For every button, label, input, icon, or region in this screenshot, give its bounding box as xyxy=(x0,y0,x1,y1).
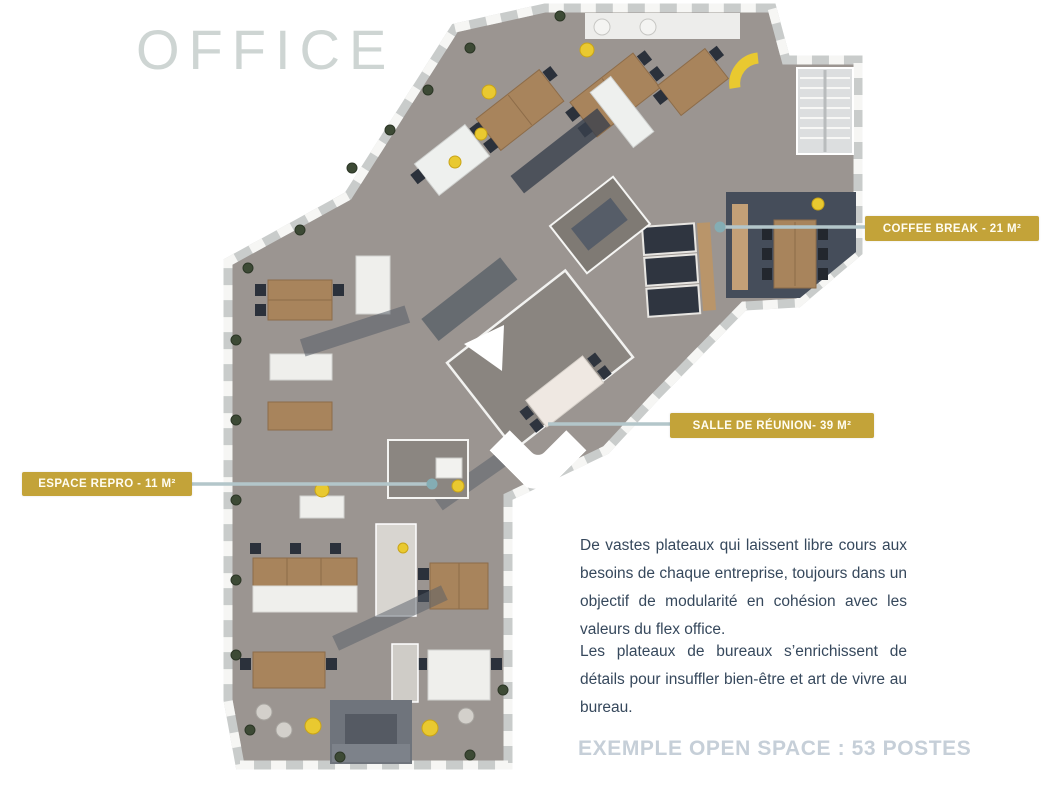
repro-anchor-dot xyxy=(427,479,438,490)
coffee-break-room xyxy=(726,192,856,298)
coffee-break-label: COFFEE BREAK - 21 M² xyxy=(865,216,1039,241)
coffee-break-anchor-dot xyxy=(715,222,726,233)
body-paragraph-1: De vastes plateaux qui laissent libre co… xyxy=(580,532,907,644)
open-space-caption: EXEMPLE OPEN SPACE : 53 POSTES xyxy=(578,737,971,761)
staircase xyxy=(797,68,853,154)
body-paragraph-2: Les plateaux de bureaux s’enrichissent d… xyxy=(580,638,907,722)
repro-label: ESPACE REPRO - 11 M² xyxy=(22,472,192,496)
page-title: OFFICE xyxy=(136,22,395,78)
phone-booths xyxy=(642,222,716,317)
meeting-room-label: SALLE DE RÉUNION- 39 M² xyxy=(670,413,874,438)
brochure-page: OFFICE COFFEE BREAK - 21 M² SALLE DE RÉU… xyxy=(0,0,1059,794)
